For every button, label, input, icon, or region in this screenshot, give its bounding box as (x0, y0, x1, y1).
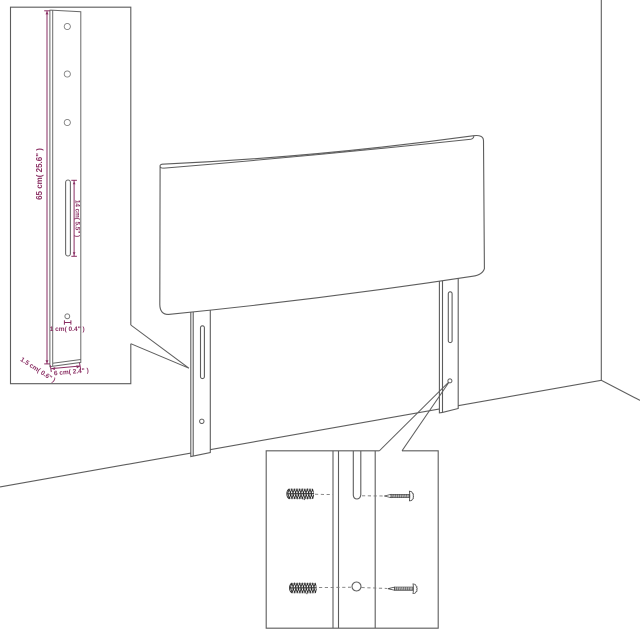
svg-text:14 cm( 5.5" ): 14 cm( 5.5" ) (73, 200, 80, 237)
svg-text:6 cm( 2.4" ): 6 cm( 2.4" ) (54, 367, 89, 377)
svg-text:65 cm( 25.6" ): 65 cm( 25.6" ) (35, 148, 44, 200)
svg-text:1 cm( 0.4" ): 1 cm( 0.4" ) (50, 326, 85, 333)
